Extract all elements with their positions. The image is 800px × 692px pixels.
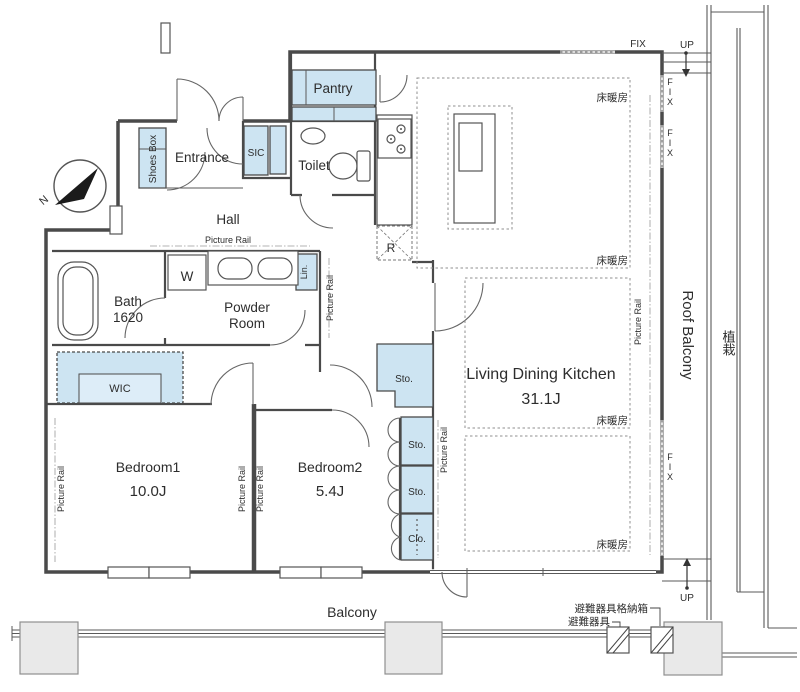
floor-heating-label-3: 床暖房: [597, 414, 629, 427]
fix-label-top: FIX: [630, 39, 646, 50]
fix-label-right-3: FIX: [665, 452, 675, 482]
toilet-tank: [357, 151, 370, 181]
picture-rail-label-sto: Picture Rail: [439, 427, 449, 473]
closet-label: Clo.: [408, 534, 426, 545]
bedroom2-size-label: 5.4J: [316, 483, 344, 500]
storage-big-label: Sto.: [395, 374, 413, 385]
floor-heating-label-2: 床暖房: [597, 254, 629, 267]
fridge-label: R: [387, 241, 396, 255]
powder-room-label-1: Powder: [224, 300, 270, 315]
toilet-label: Toilet: [298, 158, 330, 173]
pillar-left: [20, 622, 78, 674]
picture-rail-label-bed2-left: Picture Rail: [255, 466, 265, 512]
shoes-box-label: Shoes Box: [148, 135, 159, 183]
planting-label: 植栽: [721, 330, 736, 356]
bifold-doors: [388, 418, 400, 560]
floor-heating-label-4: 床暖房: [597, 538, 629, 551]
fix-label-right-2: FIX: [665, 128, 675, 158]
floor-plan-page: N Entrance Shoes Box SIC Toilet Pantry H…: [0, 0, 800, 692]
picture-rail-label-bed1-left: Picture Rail: [56, 466, 66, 512]
picture-rail-label-ldk: Picture Rail: [633, 299, 643, 345]
compass-north-label: N: [37, 194, 51, 208]
storage-2-label: Sto.: [408, 487, 426, 498]
entrance-label: Entrance: [175, 150, 229, 165]
ldk-size-label: 31.1J: [521, 391, 560, 408]
compass: N: [37, 160, 106, 212]
up-label-bottom: UP: [680, 593, 694, 604]
hand-basin: [301, 128, 325, 144]
floor-heating-zones: [417, 78, 630, 551]
bedroom1-label: Bedroom1: [116, 459, 181, 475]
fix-windows: [560, 51, 663, 556]
bedroom1-size-label: 10.0J: [130, 483, 167, 500]
roof-balcony-label: Roof Balcony: [679, 290, 696, 380]
island-sink: [459, 123, 482, 171]
balcony-label: Balcony: [327, 604, 377, 620]
evac-equipment-label: 避難器具: [568, 615, 610, 628]
pantry-label: Pantry: [313, 81, 352, 96]
powder-room-label-2: Room: [229, 316, 265, 331]
bedroom2-label: Bedroom2: [298, 459, 363, 475]
fixtures: [58, 23, 495, 340]
picture-rail-label-hall: Picture Rail: [205, 235, 251, 245]
floor-plan: N Entrance Shoes Box SIC Toilet Pantry H…: [0, 0, 800, 692]
toilet-bowl: [329, 153, 357, 179]
sink-1: [218, 258, 252, 279]
meter-box: [110, 206, 122, 234]
ldk-label: Living Dining Kitchen: [466, 366, 615, 383]
picture-rail-label-powder: Picture Rail: [325, 275, 335, 321]
bath-label: Bath: [114, 294, 142, 309]
floor-heating-label-1: 床暖房: [597, 91, 629, 104]
bath-size-label: 1620: [113, 310, 143, 325]
fix-label-right-1: FIX: [665, 77, 675, 107]
balcony-railing: [12, 626, 667, 641]
washer-label: W: [181, 269, 194, 284]
pillar-center: [385, 622, 442, 674]
storage-1-label: Sto.: [408, 440, 426, 451]
wic-label: WIC: [109, 383, 130, 395]
sic-closet-2: [270, 126, 286, 174]
up-arrow-bottom: [683, 558, 691, 590]
picture-rail-label-bed1-right: Picture Rail: [237, 466, 247, 512]
sink-2: [258, 258, 292, 279]
up-label-top: UP: [680, 40, 694, 51]
hall-label: Hall: [216, 212, 239, 227]
evac-storage-box-label: 避難器具格納箱: [575, 602, 649, 615]
sic-label: SIC: [248, 148, 265, 159]
corridor-tick-1: [161, 23, 170, 53]
linen-label: Lin.: [299, 265, 309, 280]
